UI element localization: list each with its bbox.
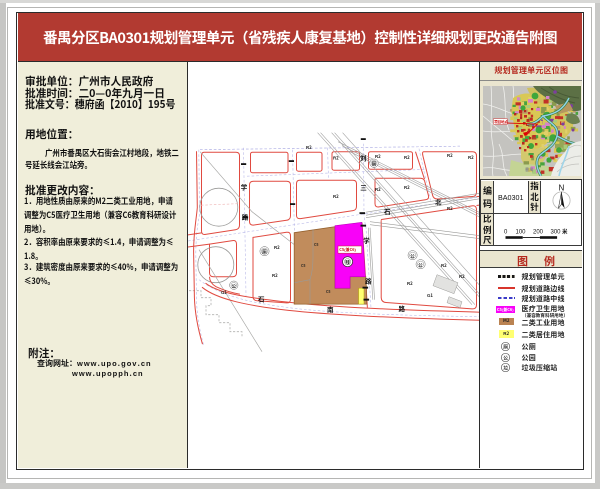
svg-text:公: 公 (418, 263, 423, 269)
svg-text:厕: 厕 (262, 250, 267, 256)
svg-text:R2: R2 (375, 187, 381, 193)
svg-text:石: 石 (384, 206, 391, 216)
svg-text:路: 路 (398, 303, 405, 313)
svg-text:C5(兼C6): C5(兼C6) (339, 246, 356, 253)
svg-text:R2: R2 (274, 245, 280, 251)
svg-text:100: 100 (516, 229, 527, 235)
svg-text:R2: R2 (306, 145, 312, 151)
svg-text:R2: R2 (333, 194, 339, 200)
svg-text:300: 300 (551, 229, 562, 235)
svg-text:米: 米 (562, 227, 568, 235)
svg-text:北: 北 (435, 197, 442, 207)
svg-text:0: 0 (504, 229, 508, 235)
svg-text:R2: R2 (468, 155, 474, 161)
svg-text:公: 公 (503, 354, 508, 361)
svg-text:学: 学 (241, 182, 248, 192)
svg-text:路: 路 (242, 212, 249, 222)
svg-text:G1: G1 (427, 293, 433, 299)
svg-text:C5: C5 (301, 264, 305, 269)
svg-text:路: 路 (365, 276, 372, 286)
svg-text:番禺: 番禺 (525, 166, 533, 173)
svg-text:项目地点: 项目地点 (494, 119, 508, 124)
svg-text:R2: R2 (333, 156, 339, 162)
svg-text:刘: 刘 (360, 153, 367, 163)
svg-text:R2: R2 (441, 263, 447, 269)
svg-text:C5: C5 (326, 290, 330, 295)
svg-text:三: 三 (360, 182, 367, 192)
svg-text:厕: 厕 (372, 162, 377, 168)
svg-text:垃: 垃 (503, 365, 508, 372)
svg-text:R2: R2 (272, 273, 278, 279)
svg-text:R2: R2 (404, 185, 410, 191)
svg-text:厕: 厕 (503, 343, 508, 350)
svg-text:R2: R2 (404, 155, 410, 161)
svg-text:G1: G1 (221, 290, 227, 296)
svg-text:残: 残 (345, 259, 350, 266)
svg-text:N: N (559, 183, 565, 192)
svg-text:C5: C5 (314, 243, 318, 248)
svg-text:公: 公 (232, 284, 237, 290)
svg-text:公: 公 (410, 254, 415, 260)
svg-text:200: 200 (533, 229, 544, 235)
svg-text:R2: R2 (447, 153, 453, 159)
svg-text:学: 学 (363, 235, 370, 245)
svg-text:R2: R2 (447, 206, 453, 212)
svg-text:R2: R2 (407, 281, 413, 287)
svg-text:石: 石 (258, 294, 265, 304)
svg-text:南: 南 (327, 304, 334, 314)
svg-text:R2: R2 (459, 274, 465, 280)
svg-text:R2: R2 (375, 154, 381, 160)
